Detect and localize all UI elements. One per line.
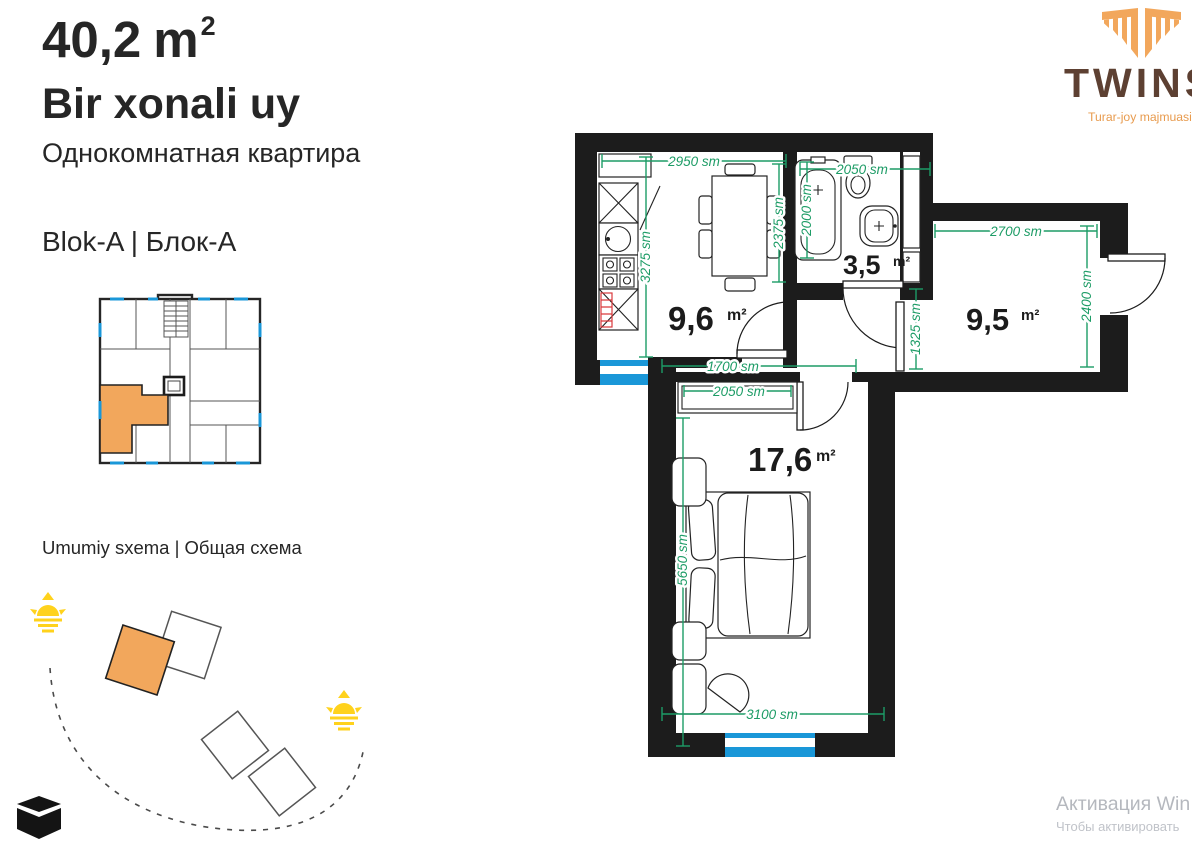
bathroom-area-unit: m²: [893, 253, 910, 269]
stove: [599, 255, 638, 289]
watermark-line1: Активация Win: [1056, 793, 1190, 816]
twins-logo: TWINS Turar-joy majmuasi: [1064, 4, 1192, 134]
nightstand-top: [672, 458, 706, 506]
svg-text:5650 sm: 5650 sm: [675, 534, 690, 586]
svg-text:2000 sm: 2000 sm: [799, 184, 814, 237]
floor-plan: 2950 sm 2050 sm 3275 sm 2375 sm: [560, 125, 1192, 842]
kitchen-area-label: 9,6: [668, 300, 714, 337]
title-russian: Однокомнатная квартира: [42, 138, 360, 169]
block-label: Blok-A | Блок-А: [42, 226, 236, 258]
kitchen-window: [600, 360, 648, 385]
twins-logo-tagline: Turar-joy majmuasi: [1088, 110, 1192, 124]
dim-room-depth: 2400 sm: [1079, 226, 1094, 367]
dim-room-width: 2700 sm: [935, 224, 1097, 239]
svg-text:2375 sm: 2375 sm: [771, 197, 786, 250]
svg-text:2050 sm: 2050 sm: [712, 384, 765, 399]
svg-text:2950 sm: 2950 sm: [667, 154, 720, 169]
walls: [575, 133, 1128, 757]
area-superscript: 2: [201, 11, 216, 41]
schematic-elevator: [164, 377, 184, 395]
dining-table: [699, 164, 780, 291]
bedroom-area-label: 17,6: [748, 441, 812, 478]
washbasin: [860, 206, 898, 246]
bedroom-furniture: [672, 382, 810, 714]
bedroom-door: [797, 382, 848, 430]
entrance-door: [1108, 254, 1165, 313]
page-title: 40,2m2: [42, 10, 214, 69]
bathroom-area-label: 3,5: [843, 250, 881, 280]
bedroom-area-unit: m²: [816, 448, 836, 465]
svg-text:2400 sm: 2400 sm: [1079, 270, 1094, 323]
sunrise-icon-west: [30, 592, 66, 633]
twins-logo-icon: [1100, 6, 1183, 60]
armchair: [708, 674, 749, 712]
dim-kitchen-depth: 3275 sm: [638, 157, 653, 357]
dresser: [672, 664, 706, 714]
area-value: 40,2: [42, 11, 141, 68]
dim-hall-depth: 1325 sm: [908, 289, 923, 369]
hall-room-door: [896, 302, 904, 371]
svg-text:1325 sm: 1325 sm: [908, 303, 923, 355]
hall-room-area-label: 9,5: [966, 302, 1009, 337]
bedroom-window: [725, 733, 815, 757]
cube-icon: [14, 796, 64, 842]
cabinet-with-radiator: [599, 289, 638, 330]
sunrise-icon-east: [326, 690, 362, 731]
svg-text:1700 sm: 1700 sm: [707, 359, 759, 374]
block-floor-schematic: [98, 293, 264, 475]
svg-text:2700 sm: 2700 sm: [989, 224, 1042, 239]
svg-text:3275 sm: 3275 sm: [638, 231, 653, 283]
svg-text:3100 sm: 3100 sm: [746, 707, 798, 722]
scheme-label: Umumiy sxema | Общая схема: [42, 537, 302, 559]
bathroom-door: [843, 281, 903, 348]
windows-activation-watermark: Активация Win Чтобы активировать: [1056, 793, 1190, 834]
page: 40,2m2 Bir xonali uy Однокомнатная кварт…: [0, 0, 1192, 842]
kitchen-area-unit: m²: [727, 307, 747, 324]
title-uzbek: Bir xonali uy: [42, 80, 300, 129]
site-plan: [25, 588, 420, 842]
kitchen-sink: [599, 223, 638, 255]
nightstand-bottom: [672, 622, 706, 660]
sun-path-arc: [50, 668, 363, 830]
hall-room-area-unit: m²: [1021, 307, 1039, 324]
twins-logo-text: TWINS: [1064, 60, 1192, 107]
svg-text:2050 sm: 2050 sm: [835, 162, 888, 177]
watermark-line2: Чтобы активировать: [1056, 819, 1190, 834]
bed: [686, 492, 810, 638]
area-unit: m: [153, 11, 198, 68]
schematic-stairs: [164, 301, 188, 337]
